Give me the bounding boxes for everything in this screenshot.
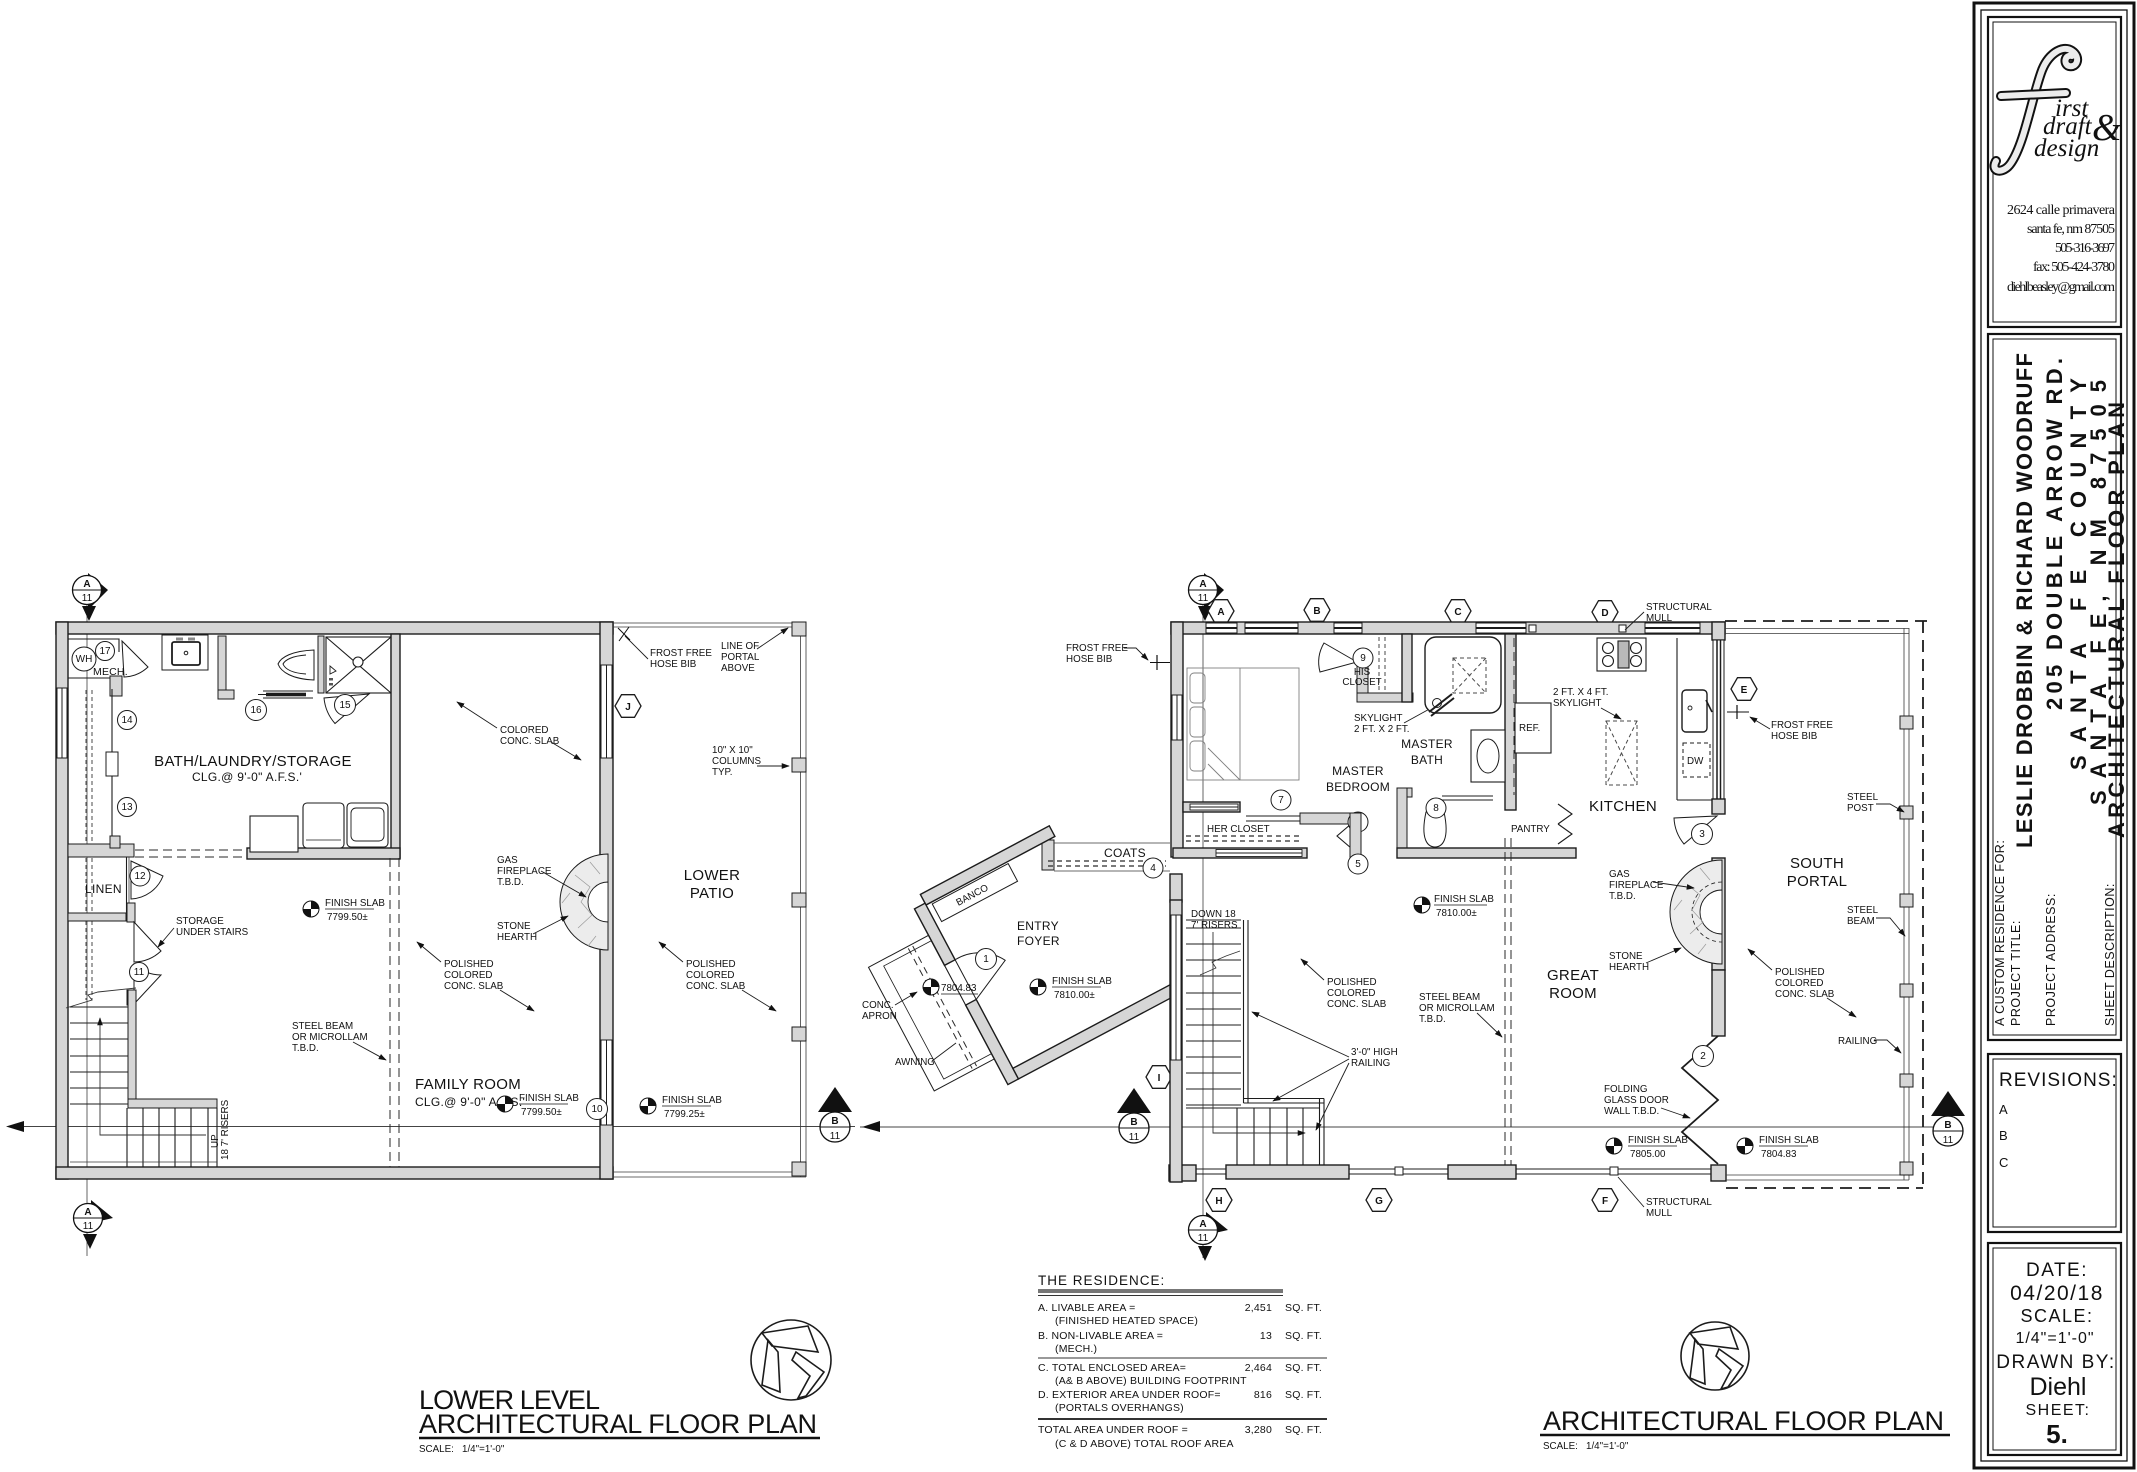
svg-text:GAS: GAS xyxy=(1609,869,1630,880)
svg-text:ENTRY: ENTRY xyxy=(1017,919,1059,933)
svg-text:fax: 505-424-3780: fax: 505-424-3780 xyxy=(2033,260,2115,275)
svg-text:TYP.: TYP. xyxy=(712,767,733,778)
svg-text:2,451: 2,451 xyxy=(1245,1302,1272,1314)
svg-text:T.B.D.: T.B.D. xyxy=(292,1043,319,1054)
svg-text:FROST FREE: FROST FREE xyxy=(1771,720,1833,731)
svg-text:BATH: BATH xyxy=(1411,753,1443,767)
svg-text:COLORED: COLORED xyxy=(500,725,548,736)
svg-text:CONC. SLAB: CONC. SLAB xyxy=(1327,999,1387,1010)
svg-text:H: H xyxy=(1215,1196,1222,1207)
svg-text:OR MICROLLAM: OR MICROLLAM xyxy=(292,1032,368,1043)
svg-text:T.B.D.: T.B.D. xyxy=(1609,891,1636,902)
svg-text:LESLIE DROBBIN & RICHARD WOODR: LESLIE DROBBIN & RICHARD WOODRUFF xyxy=(2012,353,2037,848)
svg-text:7805.00: 7805.00 xyxy=(1630,1149,1666,1160)
svg-text:FINISH SLAB: FINISH SLAB xyxy=(325,898,385,909)
svg-text:FINISH SLAB: FINISH SLAB xyxy=(662,1095,722,1106)
svg-text:POLISHED: POLISHED xyxy=(444,959,494,970)
svg-text:10: 10 xyxy=(591,1104,603,1115)
svg-text:OR MICROLLAM: OR MICROLLAM xyxy=(1419,1003,1495,1014)
svg-text:ARCHITECTURAL FLOOR PLAN: ARCHITECTURAL FLOOR PLAN xyxy=(1543,1406,1946,1436)
svg-text:B: B xyxy=(1999,1128,2008,1143)
svg-text:GLASS DOOR: GLASS DOOR xyxy=(1604,1095,1669,1106)
svg-text:STONE: STONE xyxy=(1609,951,1643,962)
svg-text:ROOM: ROOM xyxy=(1549,985,1597,1002)
svg-text:FINISH SLAB: FINISH SLAB xyxy=(519,1093,579,1104)
svg-text:AWNING: AWNING xyxy=(895,1057,935,1068)
svg-text:3'-0" HIGH: 3'-0" HIGH xyxy=(1351,1047,1398,1058)
svg-text:BEDROOM: BEDROOM xyxy=(1326,780,1390,794)
svg-text:G: G xyxy=(1375,1196,1383,1207)
svg-text:11: 11 xyxy=(830,1131,841,1142)
svg-text:WALL T.B.D.: WALL T.B.D. xyxy=(1604,1106,1659,1117)
svg-text:8: 8 xyxy=(1433,803,1439,814)
svg-text:Diehl: Diehl xyxy=(2030,1373,2087,1401)
svg-text:FINISH SLAB: FINISH SLAB xyxy=(1759,1135,1819,1146)
svg-text:PATIO: PATIO xyxy=(690,885,734,902)
svg-text:STEEL: STEEL xyxy=(1847,905,1879,916)
svg-text:13: 13 xyxy=(1260,1330,1272,1342)
svg-text:A: A xyxy=(1999,1102,2008,1117)
svg-text:PROJECT ADDRESS:: PROJECT ADDRESS: xyxy=(2044,893,2058,1026)
svg-text:ARCHITECTURAL FLOOR PLAN: ARCHITECTURAL FLOOR PLAN xyxy=(2104,402,2129,838)
svg-text:11: 11 xyxy=(82,593,93,604)
svg-text:3: 3 xyxy=(1699,829,1705,840)
svg-text:COLORED: COLORED xyxy=(1327,988,1375,999)
svg-text:B: B xyxy=(1313,606,1320,617)
svg-text:FOLDING: FOLDING xyxy=(1604,1084,1648,1095)
svg-text:04/20/18: 04/20/18 xyxy=(2010,1282,2104,1305)
svg-text:SQ. FT.: SQ. FT. xyxy=(1285,1330,1322,1342)
svg-text:SOUTH: SOUTH xyxy=(1790,855,1844,872)
svg-text:UNDER STAIRS: UNDER STAIRS xyxy=(176,927,249,938)
svg-text:7799.25±: 7799.25± xyxy=(664,1109,705,1120)
svg-text:5.: 5. xyxy=(2046,1419,2068,1449)
svg-text:FROST FREE: FROST FREE xyxy=(1066,643,1128,654)
svg-text:REF.: REF. xyxy=(1519,723,1540,734)
svg-text:PORTAL: PORTAL xyxy=(1787,873,1847,890)
svg-text:5: 5 xyxy=(1355,859,1361,870)
svg-text:7810.00±: 7810.00± xyxy=(1054,990,1095,1001)
svg-text:SKYLIGHT: SKYLIGHT xyxy=(1354,713,1402,724)
svg-text:STRUCTURAL: STRUCTURAL xyxy=(1646,602,1712,613)
svg-text:C. TOTAL ENCLOSED AREA=: C. TOTAL ENCLOSED AREA= xyxy=(1038,1362,1186,1374)
svg-text:santa fe, nm 87505: santa fe, nm 87505 xyxy=(2027,222,2115,237)
svg-text:B. NON-LIVABLE AREA =: B. NON-LIVABLE AREA = xyxy=(1038,1330,1163,1342)
svg-text:11: 11 xyxy=(134,967,145,978)
svg-text:LOWER: LOWER xyxy=(684,867,741,884)
svg-text:DATE:: DATE: xyxy=(2026,1260,2088,1281)
svg-text:11: 11 xyxy=(83,1221,94,1232)
svg-text:POLISHED: POLISHED xyxy=(1775,967,1825,978)
svg-text:(C & D ABOVE) TOTAL ROOF AREA: (C & D ABOVE) TOTAL ROOF AREA xyxy=(1055,1438,1234,1450)
svg-text:11: 11 xyxy=(1198,593,1209,604)
svg-text:SQ. FT.: SQ. FT. xyxy=(1285,1424,1322,1436)
svg-text:SQ. FT.: SQ. FT. xyxy=(1285,1362,1322,1374)
svg-text:CONC. SLAB: CONC. SLAB xyxy=(444,981,504,992)
svg-text:7804.83: 7804.83 xyxy=(1761,1149,1797,1160)
svg-text:COLORED: COLORED xyxy=(444,970,492,981)
svg-text:STEEL BEAM: STEEL BEAM xyxy=(1419,992,1480,1003)
svg-text:DRAWN BY:: DRAWN BY: xyxy=(1996,1352,2115,1373)
svg-text:C: C xyxy=(1454,607,1461,618)
svg-text:15: 15 xyxy=(339,700,351,711)
svg-text:A. LIVABLE AREA =: A. LIVABLE AREA = xyxy=(1038,1302,1135,1314)
svg-text:HOSE BIB: HOSE BIB xyxy=(650,659,697,670)
svg-text:2 FT. X 2 FT.: 2 FT. X 2 FT. xyxy=(1354,724,1410,735)
svg-text:REVISIONS:: REVISIONS: xyxy=(1999,1070,2118,1091)
svg-text:T.B.D.: T.B.D. xyxy=(1419,1014,1446,1025)
svg-text:SHEET:: SHEET: xyxy=(2025,1402,2090,1419)
svg-text:WH: WH xyxy=(76,654,93,665)
svg-text:HEARTH: HEARTH xyxy=(1609,962,1649,973)
svg-text:I: I xyxy=(1158,1073,1161,1084)
svg-text:4: 4 xyxy=(1150,863,1156,874)
svg-text:E: E xyxy=(1741,685,1748,696)
svg-text:APRON: APRON xyxy=(862,1011,897,1022)
svg-text:MULL: MULL xyxy=(1646,613,1673,624)
svg-text:PROJECT TITLE:: PROJECT TITLE: xyxy=(2009,920,2023,1026)
svg-text:MASTER: MASTER xyxy=(1401,737,1453,751)
svg-text:3,280: 3,280 xyxy=(1245,1424,1272,1436)
svg-text:17: 17 xyxy=(99,646,111,657)
svg-text:816: 816 xyxy=(1254,1389,1272,1401)
svg-text:C: C xyxy=(1999,1155,2008,1170)
svg-text:THE RESIDENCE:: THE RESIDENCE: xyxy=(1038,1273,1165,1288)
svg-text:SQ. FT.: SQ. FT. xyxy=(1285,1389,1322,1401)
svg-text:SKYLIGHT: SKYLIGHT xyxy=(1553,698,1601,709)
svg-text:A: A xyxy=(83,579,90,590)
svg-text:2: 2 xyxy=(1700,1051,1706,1062)
svg-text:COLORED: COLORED xyxy=(1775,978,1823,989)
svg-text:7799.50±: 7799.50± xyxy=(327,912,368,923)
svg-text:design: design xyxy=(2034,135,2099,162)
svg-text:7: 7 xyxy=(1278,795,1284,806)
svg-text:STRUCTURAL: STRUCTURAL xyxy=(1646,1197,1712,1208)
svg-text:COATS: COATS xyxy=(1104,846,1146,860)
svg-text:FIREPLACE: FIREPLACE xyxy=(497,866,552,877)
svg-text:BATH/LAUNDRY/STORAGE: BATH/LAUNDRY/STORAGE xyxy=(154,753,352,770)
svg-text:HEARTH: HEARTH xyxy=(497,932,537,943)
svg-text:STORAGE: STORAGE xyxy=(176,916,224,927)
svg-text:SCALE: 1/4"=1'-0": SCALE: 1/4"=1'-0" xyxy=(419,1444,505,1455)
svg-text:A: A xyxy=(1199,1219,1206,1230)
svg-text:RAILING: RAILING xyxy=(1351,1058,1390,1069)
svg-text:(PORTALS OVERHANGS): (PORTALS OVERHANGS) xyxy=(1055,1402,1184,1414)
svg-text:2 FT. X 4 FT.: 2 FT. X 4 FT. xyxy=(1553,687,1609,698)
svg-text:DW: DW xyxy=(1687,756,1704,767)
svg-text:POLISHED: POLISHED xyxy=(686,959,736,970)
svg-text:7804.83: 7804.83 xyxy=(941,983,977,994)
svg-text:BEAM: BEAM xyxy=(1847,916,1875,927)
svg-text:13: 13 xyxy=(121,802,133,813)
svg-text:12: 12 xyxy=(134,871,146,882)
svg-text:MASTER: MASTER xyxy=(1332,764,1384,778)
svg-text:CONC. SLAB: CONC. SLAB xyxy=(1775,989,1835,1000)
svg-text:FINISH SLAB: FINISH SLAB xyxy=(1628,1135,1688,1146)
svg-text:F: F xyxy=(1602,1196,1608,1207)
svg-text:D: D xyxy=(1601,608,1608,619)
svg-text:CONC. SLAB: CONC. SLAB xyxy=(686,981,746,992)
svg-text:TOTAL AREA UNDER ROOF =: TOTAL AREA UNDER ROOF = xyxy=(1038,1424,1188,1436)
svg-text:11: 11 xyxy=(1129,1132,1140,1143)
svg-text:LINEN: LINEN xyxy=(85,882,122,896)
svg-text:CLG.@ 9'-0" A.F.S.': CLG.@ 9'-0" A.F.S.' xyxy=(192,770,302,784)
svg-text:2,464: 2,464 xyxy=(1245,1362,1272,1374)
svg-text:A: A xyxy=(1217,607,1224,618)
svg-text:SHEET DESCRIPTION:: SHEET DESCRIPTION: xyxy=(2103,883,2117,1026)
svg-text:(FINISHED HEATED SPACE): (FINISHED HEATED SPACE) xyxy=(1055,1315,1198,1327)
svg-text:COLUMNS: COLUMNS xyxy=(712,756,761,767)
svg-text:PORTAL: PORTAL xyxy=(721,652,760,663)
svg-text:10" X 10": 10" X 10" xyxy=(712,745,753,756)
svg-text:J: J xyxy=(625,702,631,713)
svg-text:COLORED: COLORED xyxy=(686,970,734,981)
svg-text:SCALE:: SCALE: xyxy=(2020,1306,2093,1326)
svg-text:SCALE: 1/4"=1'-0": SCALE: 1/4"=1'-0" xyxy=(1543,1441,1629,1452)
svg-text:FINISH SLAB: FINISH SLAB xyxy=(1434,894,1494,905)
svg-text:POST: POST xyxy=(1847,803,1874,814)
svg-text:B: B xyxy=(1944,1120,1951,1131)
svg-text:FINISH SLAB: FINISH SLAB xyxy=(1052,976,1112,987)
svg-text:FROST FREE: FROST FREE xyxy=(650,648,712,659)
svg-text:STEEL: STEEL xyxy=(1847,792,1879,803)
svg-text:GREAT: GREAT xyxy=(1547,967,1599,984)
svg-text:POLISHED: POLISHED xyxy=(1327,977,1377,988)
svg-text:1: 1 xyxy=(983,954,989,965)
svg-text:HOSE BIB: HOSE BIB xyxy=(1771,731,1818,742)
svg-text:B: B xyxy=(831,1116,838,1127)
svg-text:9: 9 xyxy=(1360,653,1366,664)
svg-text:T.B.D.: T.B.D. xyxy=(497,877,524,888)
svg-text:CONC. SLAB: CONC. SLAB xyxy=(500,736,560,747)
svg-text:16: 16 xyxy=(250,705,262,716)
svg-text:1/4"=1'-0": 1/4"=1'-0" xyxy=(2015,1330,2094,1347)
svg-text:ABOVE: ABOVE xyxy=(721,663,755,674)
svg-text:FIREPLACE: FIREPLACE xyxy=(1609,880,1664,891)
svg-text:KITCHEN: KITCHEN xyxy=(1589,798,1657,815)
svg-text:A: A xyxy=(1199,579,1206,590)
svg-text:GAS: GAS xyxy=(497,855,518,866)
svg-text:DOWN 18: DOWN 18 xyxy=(1191,909,1236,920)
svg-text:LINE OF: LINE OF xyxy=(721,641,759,652)
svg-text:STONE: STONE xyxy=(497,921,531,932)
svg-text:A CUSTOM RESIDENCE FOR:: A CUSTOM RESIDENCE FOR: xyxy=(1993,840,2007,1026)
svg-text:CLOSET: CLOSET xyxy=(1342,677,1381,688)
svg-text:CONC.: CONC. xyxy=(862,1000,894,1011)
svg-text:RAILING: RAILING xyxy=(1838,1036,1877,1047)
svg-text:7810.00±: 7810.00± xyxy=(1436,908,1477,919)
svg-text:(MECH.): (MECH.) xyxy=(1055,1343,1097,1355)
svg-text:11: 11 xyxy=(1943,1135,1954,1146)
svg-text:14: 14 xyxy=(121,715,133,726)
svg-text:11: 11 xyxy=(1198,1233,1209,1244)
svg-text:18 7' RISERS: 18 7' RISERS xyxy=(220,1099,231,1160)
svg-text:2624 calle primavera: 2624 calle primavera xyxy=(2007,203,2116,218)
svg-text:SQ. FT.: SQ. FT. xyxy=(1285,1302,1322,1314)
svg-text:505-316-3697: 505-316-3697 xyxy=(2055,241,2115,256)
svg-text:A: A xyxy=(84,1207,91,1218)
svg-text:7' RISERS: 7' RISERS xyxy=(1191,920,1238,931)
svg-text:HOSE BIB: HOSE BIB xyxy=(1066,654,1113,665)
svg-text:MULL: MULL xyxy=(1646,1208,1673,1219)
svg-text:7799.50±: 7799.50± xyxy=(521,1107,562,1118)
svg-text:ARCHITECTURAL FLOOR PLAN: ARCHITECTURAL FLOOR PLAN xyxy=(419,1409,819,1439)
svg-text:B: B xyxy=(1130,1117,1137,1128)
svg-text:PANTRY: PANTRY xyxy=(1511,824,1550,835)
svg-text:FAMILY ROOM: FAMILY ROOM xyxy=(415,1076,521,1093)
svg-text:FOYER: FOYER xyxy=(1017,934,1060,948)
svg-text:MECH.: MECH. xyxy=(93,666,128,678)
svg-text:STEEL BEAM: STEEL BEAM xyxy=(292,1021,353,1032)
svg-text:D. EXTERIOR AREA UNDER ROOF=: D. EXTERIOR AREA UNDER ROOF= xyxy=(1038,1389,1221,1401)
svg-text:HER CLOSET: HER CLOSET xyxy=(1207,824,1270,835)
svg-text:diehlbeasley@gmail.com: diehlbeasley@gmail.com xyxy=(2007,280,2115,295)
svg-text:(A& B ABOVE) BUILDING FOOTPRIN: (A& B ABOVE) BUILDING FOOTPRINT xyxy=(1055,1375,1247,1387)
